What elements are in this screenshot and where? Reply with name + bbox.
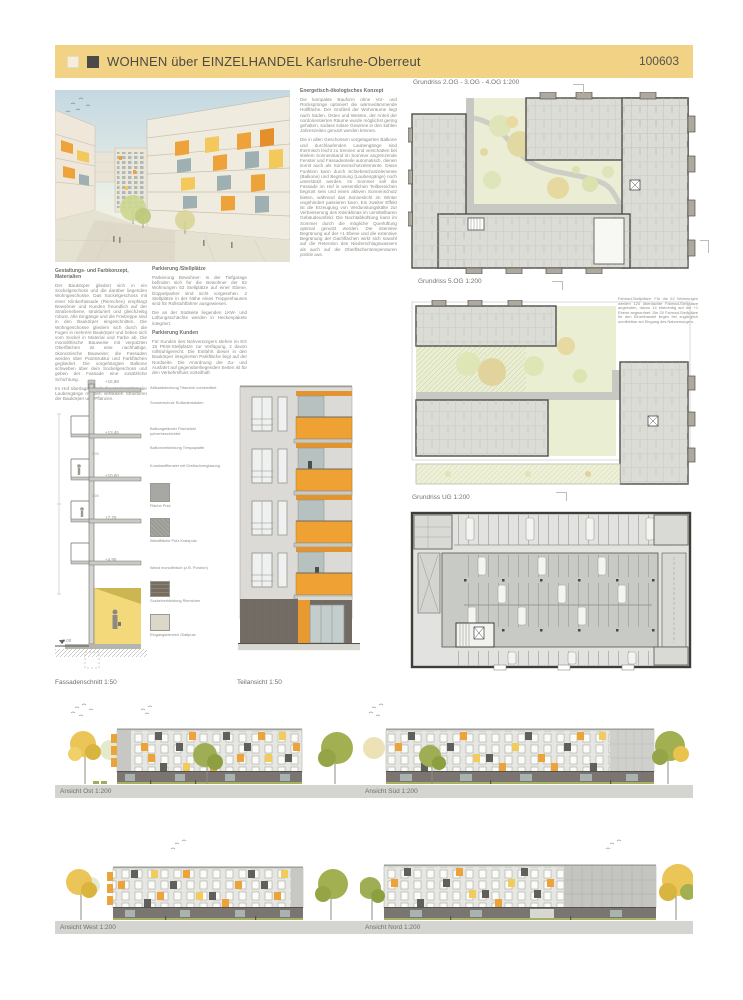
tree-icon: [360, 877, 385, 920]
level-label: +7,75: [105, 515, 116, 520]
storage-rooms: [414, 515, 452, 549]
side-balconies: [111, 734, 117, 767]
text-column-parking: Parkierung /Stellplätze Parkierung Bewoh…: [152, 266, 247, 379]
parking-stalls-bottom: [454, 651, 670, 665]
birds-icon: [71, 704, 152, 716]
callout-kratzputz: Wandfläche Putz Kratzputz: [150, 539, 220, 544]
elevation-east-drawing: [55, 700, 365, 800]
tree-icon: [659, 864, 693, 920]
level-label: +10,60: [105, 473, 119, 478]
technic-room: [654, 647, 688, 665]
pavement: [238, 644, 360, 650]
plan3-label: Grundriss UG 1:200: [412, 494, 470, 501]
plan1-label: Grundriss 2.OG - 3.OG - 4.OG 1:200: [413, 79, 519, 86]
material-swatch-kratzputz: [150, 518, 170, 537]
tree-icon: [318, 732, 353, 784]
stair-icon: [468, 218, 484, 230]
crop-mark: [552, 281, 563, 290]
crop-mark: [700, 240, 709, 253]
floor-plan-5og: [408, 300, 700, 485]
callout-fenster: Kunststofffenster mit Dreifachverglasung: [150, 464, 220, 469]
callout-putz: Fläche Putz: [150, 504, 220, 509]
callout-sockel: Sockelverkleidung Riemchen: [150, 599, 220, 604]
building-elevation: [107, 867, 303, 921]
header-banner: WOHNEN über EINZELHANDEL Karlsruhe-Oberr…: [55, 45, 693, 78]
energy-heading: Energetisch-ökologisches Konzept: [300, 88, 397, 94]
callout-sonnenschutz: Sonnenschutz Rollladenkästen: [150, 401, 220, 406]
birds-icon: [171, 840, 186, 849]
competition-board: WOHNEN über EINZELHANDEL Karlsruhe-Oberr…: [0, 0, 743, 1000]
text-column-energy: Energetisch-ökologisches Konzept Die kom…: [300, 88, 397, 261]
section-label: Fassadenschnitt 1:50: [55, 679, 117, 686]
roof-terrace-void: [594, 218, 624, 264]
floor-plan-2og-4og: [408, 92, 696, 274]
stair-core: [456, 623, 494, 647]
parking-body: Parkierung Bewohner: In der Tiefgarage b…: [152, 275, 247, 306]
elevation-south-label: Ansicht Süd 1:200: [365, 788, 418, 795]
courtyard-building-left: [55, 110, 95, 220]
plinth: [240, 597, 352, 643]
elevator-icon: [630, 180, 640, 190]
checkbox-filled-mark: [87, 56, 99, 68]
callout-eingang: Eingangsbereich Glattputz: [150, 633, 220, 638]
elevation-east-label: Ansicht Ost 1:200: [60, 788, 111, 795]
ramp: [418, 553, 440, 613]
retail-interior: [94, 588, 141, 644]
elevation-north-drawing: [360, 836, 693, 936]
elevation-west-drawing: [55, 836, 365, 936]
birds-icon: [606, 840, 621, 849]
storey-height-label: 3,00: [92, 452, 99, 456]
materials-heading: Gestaltungs- und Farbkonzept, Materialie…: [55, 268, 147, 280]
elevator-icon: [648, 416, 658, 426]
building-elevation: [384, 865, 656, 921]
person-icon: [77, 464, 84, 517]
floor-plan-ug: [408, 505, 698, 675]
page-title: WOHNEN über EINZELHANDEL Karlsruhe-Oberr…: [107, 54, 421, 69]
tree-icon: [315, 869, 348, 920]
entry-number: 100603: [639, 54, 679, 68]
material-swatch-plaster: [150, 483, 170, 502]
partial-elevation-label: Teilansicht 1:50: [237, 679, 282, 686]
parking-body2: Die an der Südseite liegenden LKW- und L…: [152, 310, 247, 326]
courtyard-building-right: [147, 96, 290, 240]
tree-icon: [68, 731, 101, 784]
facade-section-drawing: [55, 374, 147, 680]
callout-verkleidung: Balkonverkleidung Trespaplatte: [150, 446, 220, 451]
tree-icon: [66, 869, 97, 920]
partial-elevation-drawing: [238, 383, 360, 663]
level-label: ±0,00: [60, 638, 71, 643]
parking-heading2: Parkierung Kunden: [152, 330, 247, 336]
perspective-rendering: [55, 90, 290, 262]
callout-attika: Attikaabdeckung Titanzink vorbewittert: [150, 386, 220, 391]
birds-icon: [369, 704, 383, 716]
level-label: +4,90: [105, 557, 116, 562]
crop-mark: [573, 84, 584, 93]
parking-body3: Für Kunden des Nahversorgers stehen im E…: [152, 339, 247, 375]
parking-heading: Parkierung /Stellplätze: [152, 266, 247, 272]
crop-mark: [556, 492, 567, 501]
elevation-west-label: Ansicht West 1:200: [60, 924, 116, 931]
tree-icon: [652, 731, 689, 784]
callout-gelaender: Balkongeländer Flachstahl pulverbeschich…: [150, 427, 220, 436]
level-label: +13,45: [105, 430, 119, 435]
energy-body: Die kompakte Bauform ohne Vor- und Rücks…: [300, 97, 397, 133]
checkbox-outline-mark: [67, 56, 79, 68]
storey-height-label: 3,00: [92, 494, 99, 498]
side-balconies: [107, 872, 113, 905]
parking-stalls-top: [454, 515, 670, 545]
hedge: [93, 781, 107, 784]
elevation-south-drawing: [360, 700, 693, 800]
balconies: [71, 416, 89, 564]
elevation-north-label: Ansicht Nord 1:200: [365, 924, 420, 931]
exterior-wall: [89, 384, 94, 644]
level-label: +16,88: [105, 379, 119, 384]
plan2-label: Grundriss 5.OG 1:200: [418, 278, 482, 285]
measure-line: [57, 414, 61, 594]
extensive-roof-strip: [416, 464, 620, 484]
materials-body: Der Baukörper gliedert sich in ein Socke…: [55, 283, 147, 382]
ground-line: [238, 643, 360, 644]
callout-wand: Wand monolithisch (z.B. Poroton): [150, 566, 220, 571]
technic-room: [654, 515, 688, 545]
material-swatch-glattputz: [150, 614, 170, 631]
material-swatch-brick: [150, 581, 170, 597]
ground-hatch: [55, 649, 147, 657]
tree-icon: [363, 737, 385, 759]
energy-body2: Die in allen Geschossen vorgelagerten Ba…: [300, 137, 397, 257]
